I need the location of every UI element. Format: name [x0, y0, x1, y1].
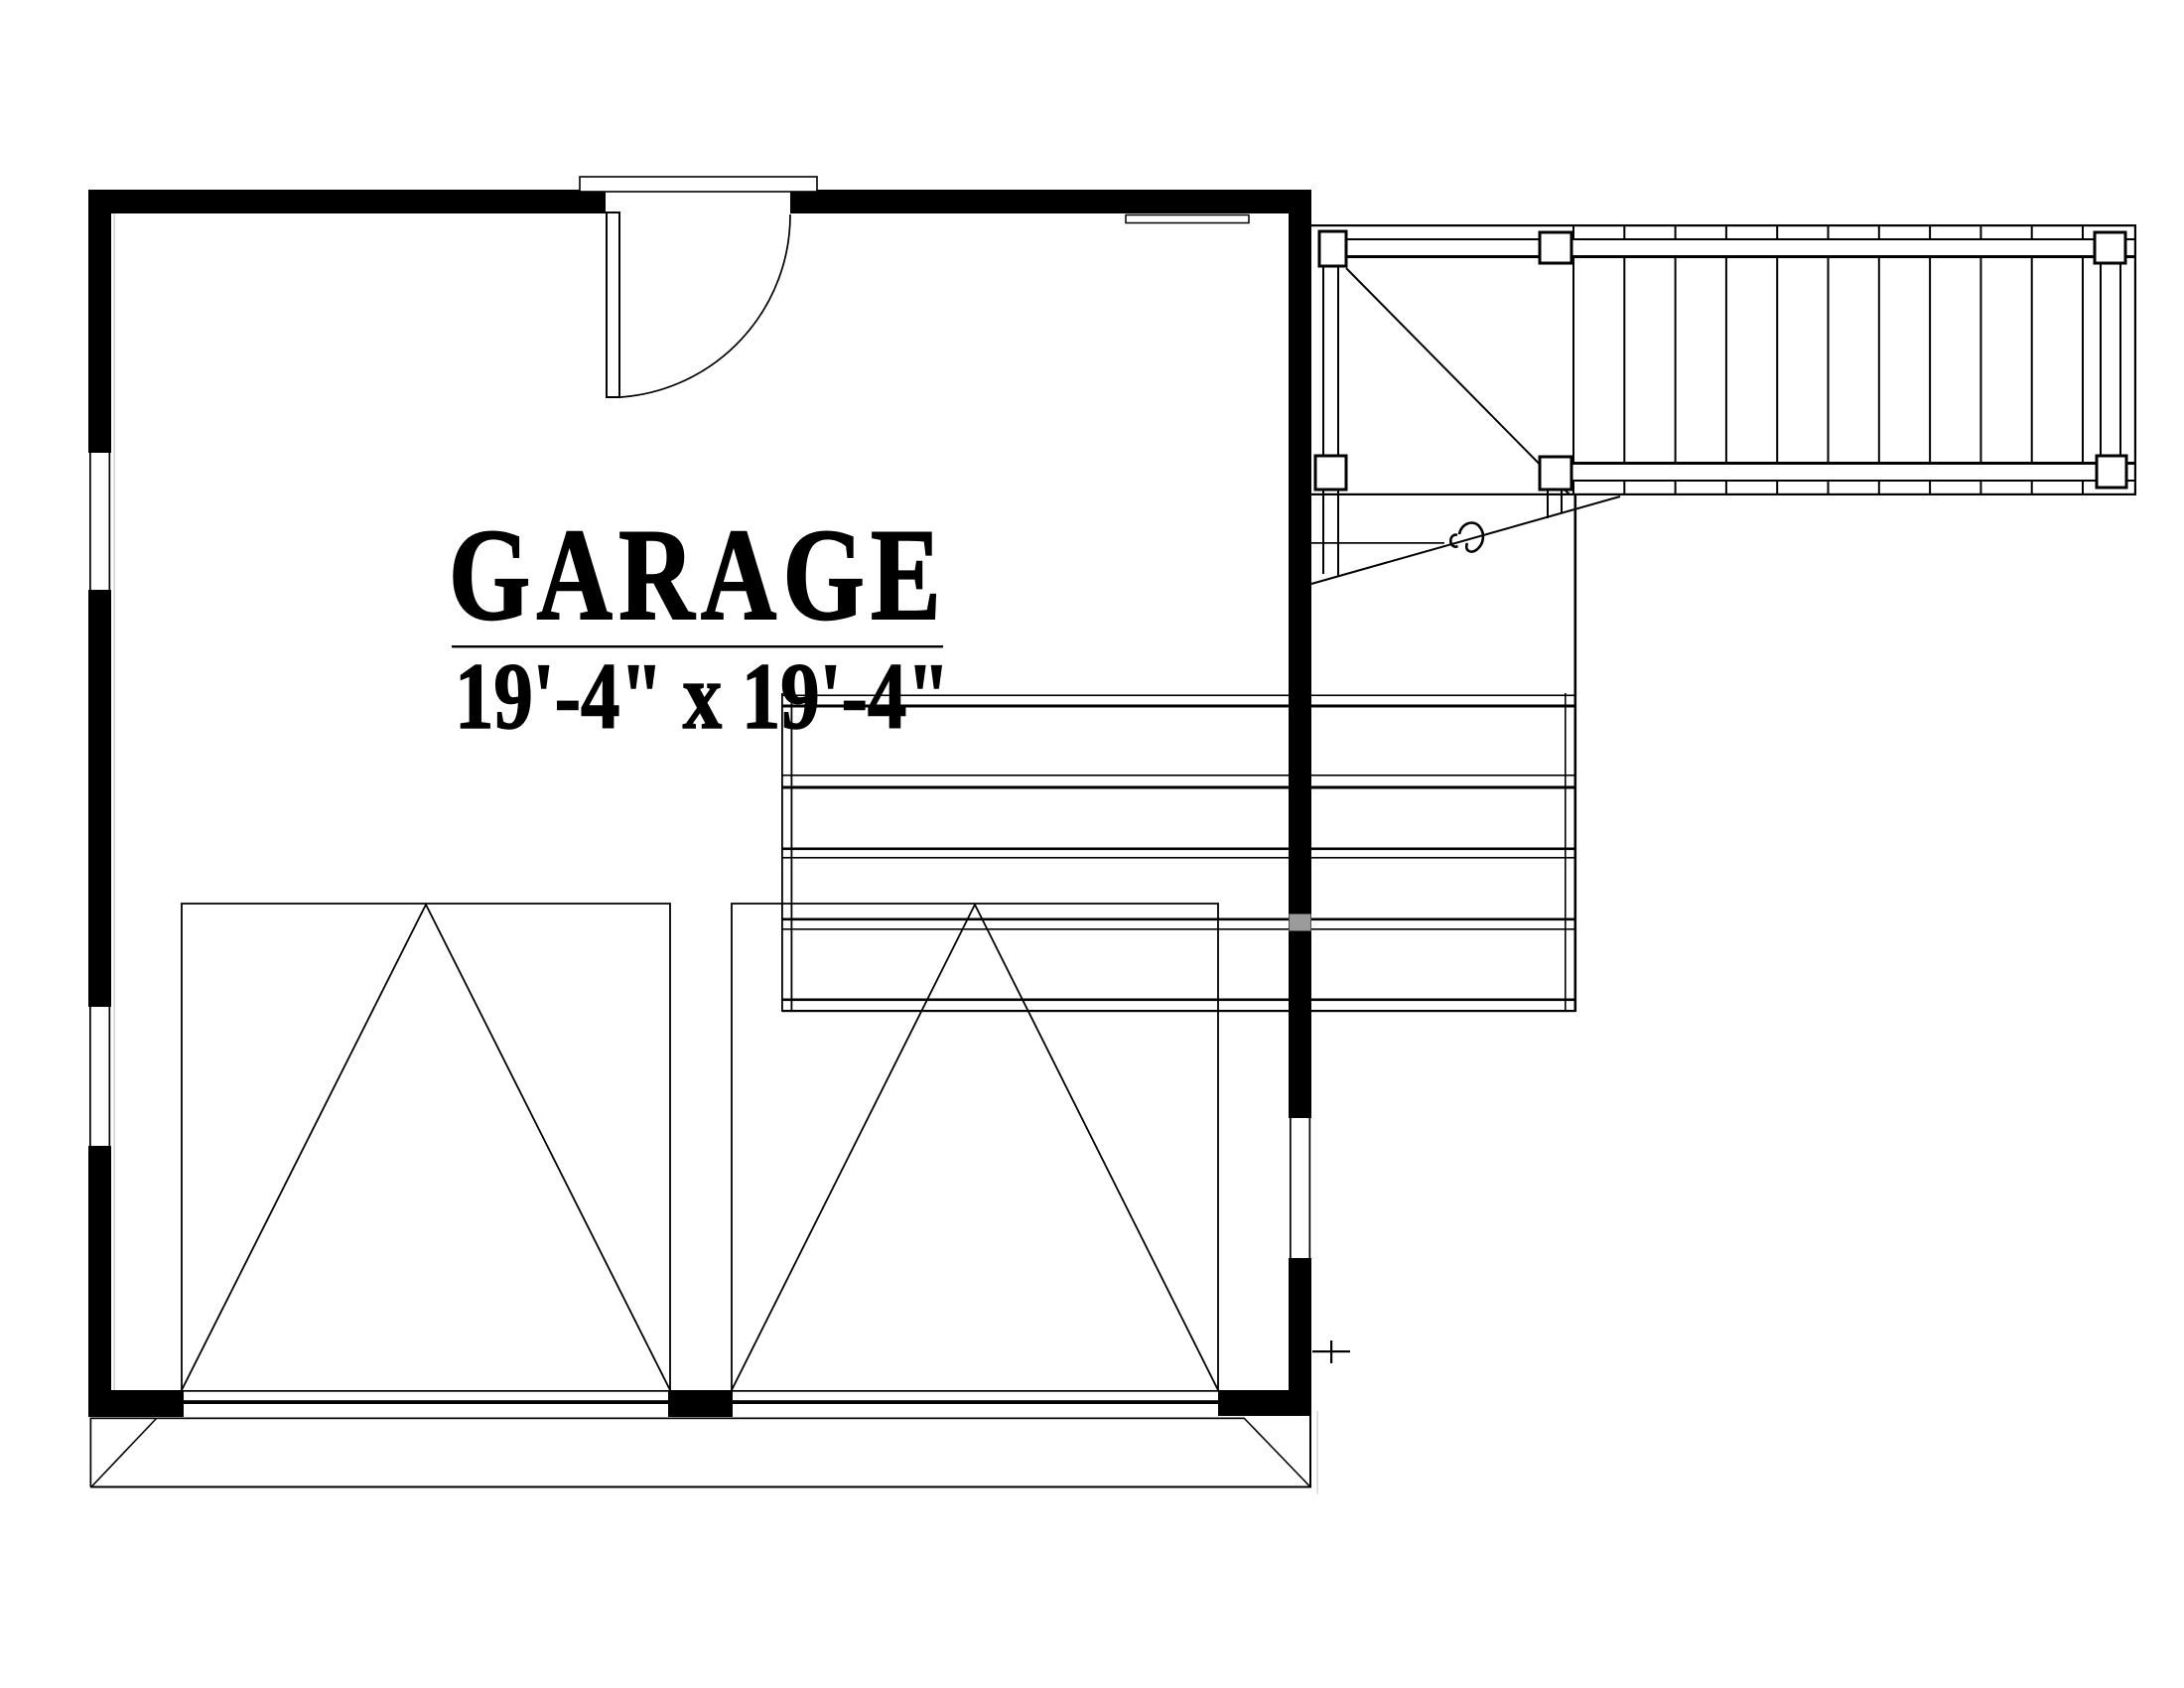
svg-text:19'-4" x 19'-4": 19'-4" x 19'-4" [455, 643, 950, 749]
svg-text:GARAGE: GARAGE [449, 501, 947, 647]
